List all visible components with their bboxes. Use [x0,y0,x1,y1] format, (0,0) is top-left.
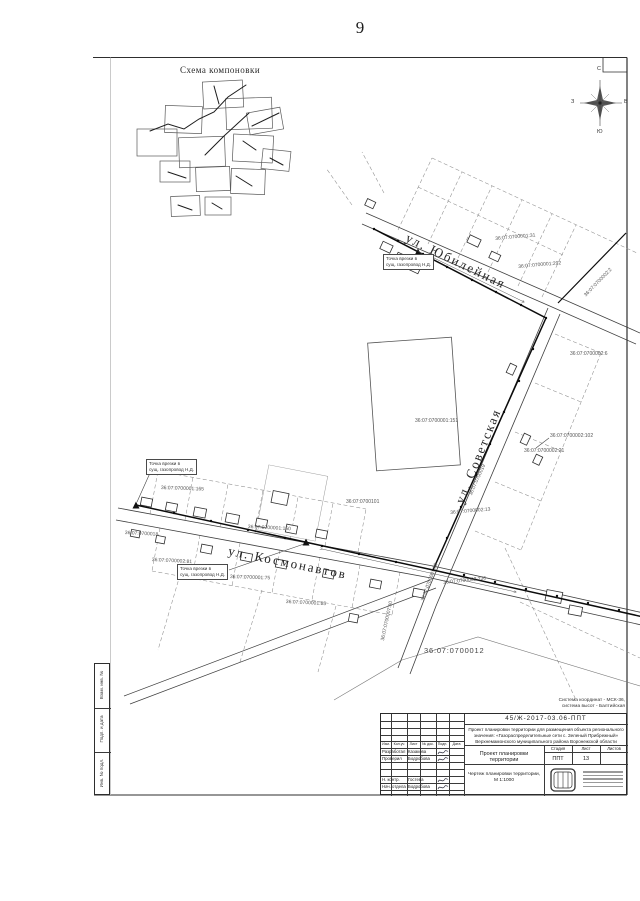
col-izm: Изм. [381,743,391,747]
compass-west-label: З [571,99,574,105]
sheet-header: Лист [572,747,600,752]
sig-name: Бодробова [408,757,435,762]
sig-role: Н. контр. [382,778,407,783]
sig-role: Проверил [382,757,407,762]
sheets-header: Листов [600,747,628,752]
title-block: 45/Ж-2017-03.06-ППТ Проект планировки те… [380,713,627,795]
parcel-boundaries [150,152,640,700]
compass-east-label: В [624,99,628,105]
col-ndok: № док. [420,743,436,747]
col-data: Дата [449,743,464,747]
signature-scribble [437,784,449,791]
sig-name: Казакова [408,750,435,755]
signature-scribble [437,749,449,756]
parcel-label: 36:07:0700001:151 [415,418,458,424]
parcel-label: 36:07:0700002:6 [570,351,608,357]
scanned-drawing-page: 9 [0,0,640,901]
layout-scheme-sketch [137,80,291,217]
tie-in-callout: Точка врезки в сущ. газопровод Н.Д. [146,459,197,475]
compass-north-label: С [597,66,601,72]
sig-role: Разработал [382,750,407,755]
compass-rose-icon [580,80,622,126]
side-stamp-cell: Взам. инв. № [94,663,110,707]
signature-scribble [437,756,449,763]
project-title: Проект планировки территории [466,752,542,764]
parcel-label: 36:07:0700002:21 [524,448,564,454]
stage-header: Стадия [544,747,572,752]
stamp-text-illegible [583,769,623,789]
sig-name: Бодробова [408,785,435,790]
signature-scribble [437,777,449,784]
callout-line: сущ. газопровод Н.Д. [149,467,194,473]
col-list: Лист [407,743,420,747]
col-koluch: Кол.уч [391,743,407,747]
coordinate-note-line: система высот - Балтийская [455,704,625,710]
compass-south-label: Ю [597,129,603,135]
callout-line: сущ. газопровод Н.Д. [180,572,225,578]
sig-name: Гостева [408,778,435,783]
gas-pipeline [136,229,640,618]
district-label: 36:07:0700012 [424,646,484,655]
coordinate-system-note: Система координат - МСК-36, система высо… [455,698,625,711]
stage-value: ППТ [544,756,572,762]
buildings [130,199,582,623]
tie-in-callout: Точка врезки в сущ. газопровод Н.Д. [383,254,434,270]
side-stamp-cell: Подп. и дата [94,707,110,751]
layout-scheme-title: Схема компоновки [180,65,260,75]
project-description-line: Проект планировки территории для размеще… [466,727,626,732]
approval-stamp-icon [549,767,579,794]
project-description-line: Верхнемамонского муниципального района В… [466,739,626,744]
drawing-title: Чертеж планировки территории, М 1:1000 [466,772,542,784]
side-stamp-cell: Инв. № подл. [94,751,110,795]
parcel-label: 36:07:0700101 [346,499,379,505]
parcel-label: 36:07:0700002:102 [550,433,593,439]
col-podp: Подп. [436,743,449,747]
sheet-value: 13 [572,756,600,762]
sig-role: Нач. отдела [382,785,407,790]
callout-line: сущ. газопровод Н.Д. [386,262,431,268]
doc-number: 45/Ж-2017-03.06-ППТ [464,716,628,723]
project-description-line: значения: «Газораспределительные сети с.… [466,733,626,738]
tie-in-callout: Точка врезки в сущ. газопровод Н.Д. [177,564,228,580]
